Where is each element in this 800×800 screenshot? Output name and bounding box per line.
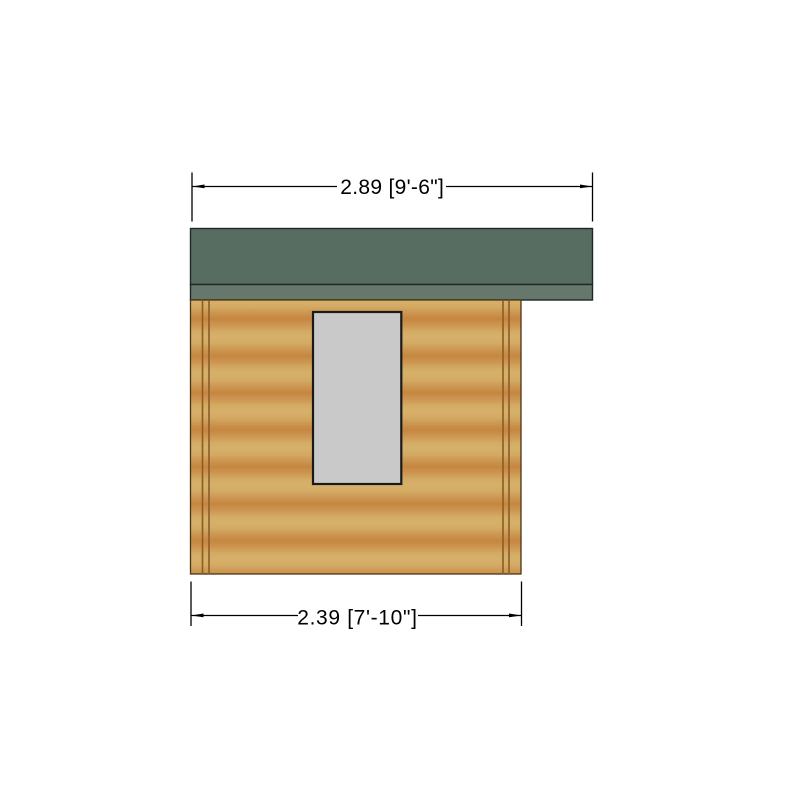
svg-text:2.89 [9'-6"]: 2.89 [9'-6"]: [340, 176, 444, 199]
svg-text:2.39 [7'-10"]: 2.39 [7'-10"]: [297, 606, 417, 629]
